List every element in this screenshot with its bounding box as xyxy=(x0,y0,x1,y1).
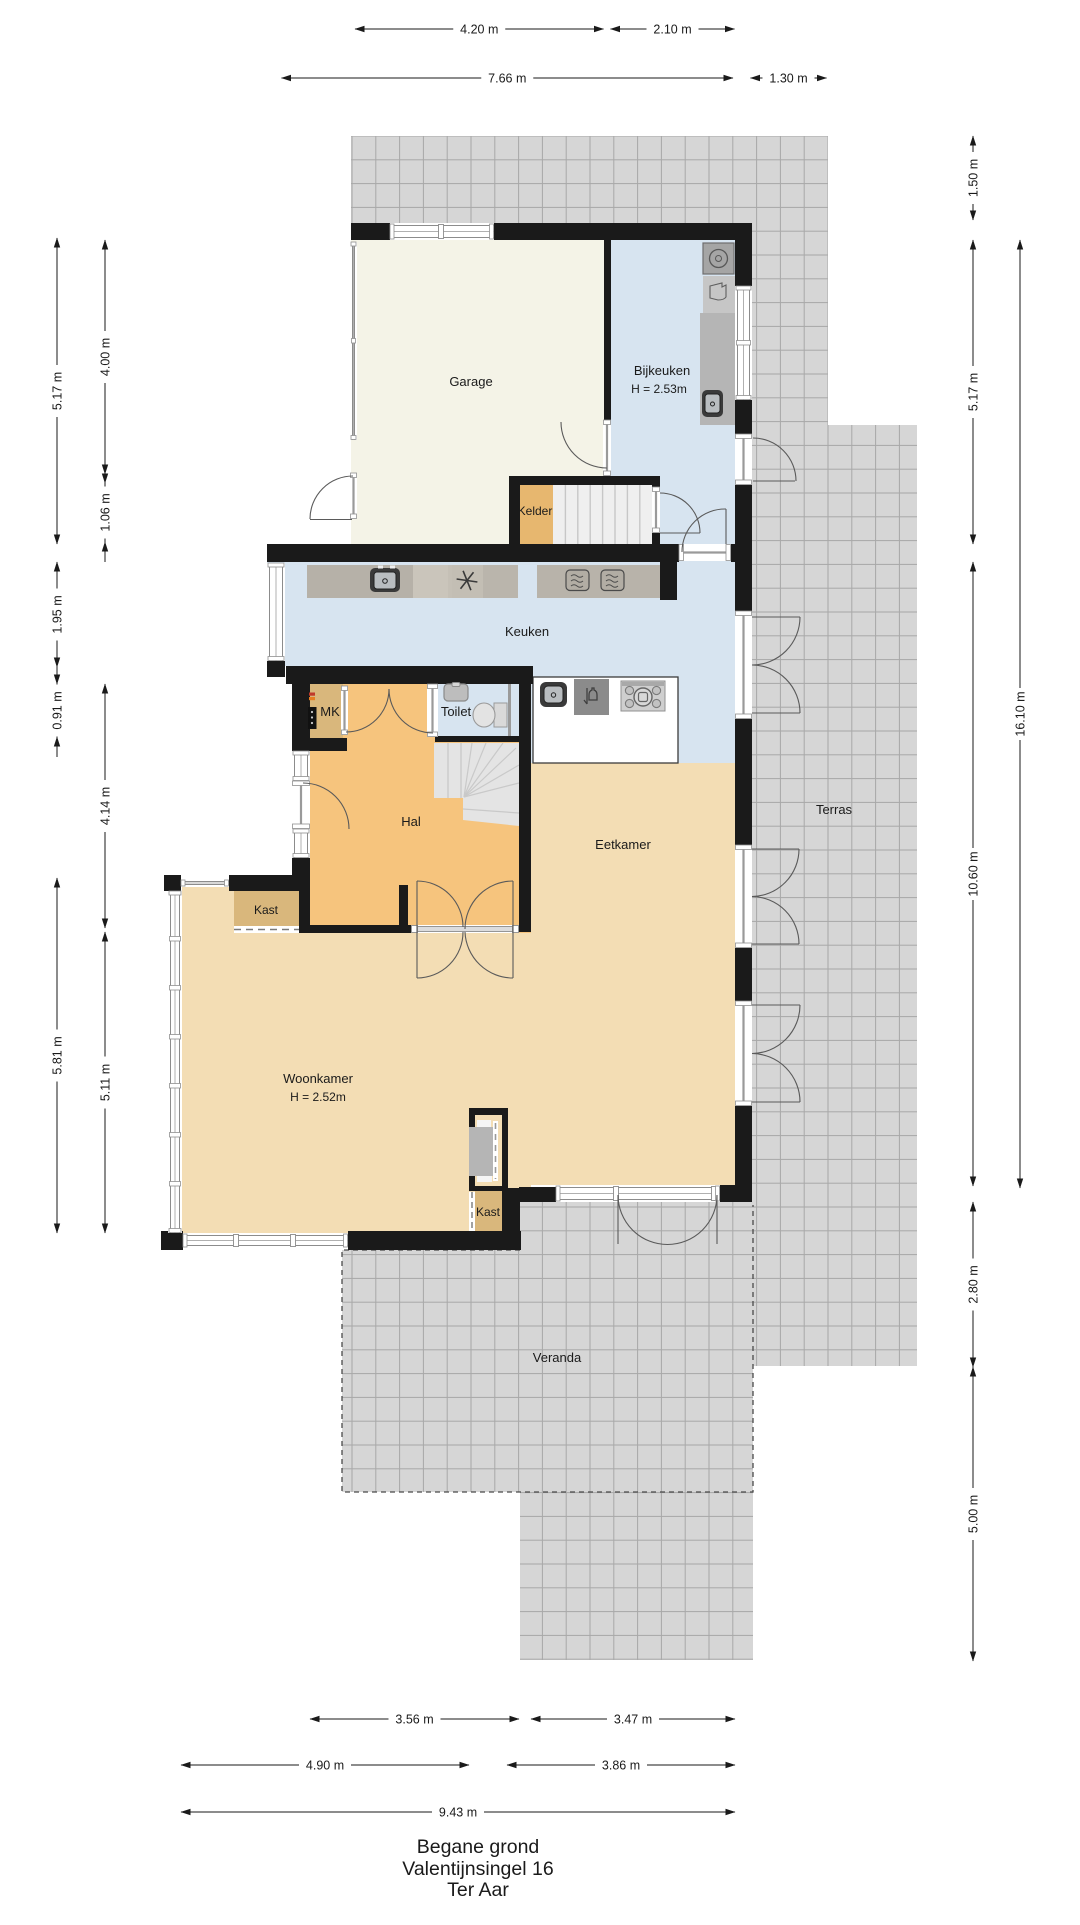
svg-text:Terras: Terras xyxy=(816,802,853,817)
svg-text:Keuken: Keuken xyxy=(505,624,549,639)
svg-text:Ter Aar: Ter Aar xyxy=(447,1879,509,1901)
svg-text:5.17 m: 5.17 m xyxy=(967,373,981,411)
svg-text:3.56 m: 3.56 m xyxy=(395,1713,433,1727)
svg-text:5.11 m: 5.11 m xyxy=(99,1064,113,1101)
svg-text:1.06 m: 1.06 m xyxy=(99,493,113,531)
svg-text:1.30 m: 1.30 m xyxy=(769,72,807,86)
svg-text:Veranda: Veranda xyxy=(533,1350,582,1365)
svg-text:10.60 m: 10.60 m xyxy=(967,851,981,896)
svg-text:0.91 m: 0.91 m xyxy=(51,691,65,729)
svg-text:H = 2.52m: H = 2.52m xyxy=(290,1090,346,1104)
svg-text:Kelder: Kelder xyxy=(518,504,553,518)
svg-text:1.95 m: 1.95 m xyxy=(51,595,65,633)
svg-text:7.66 m: 7.66 m xyxy=(488,72,526,86)
svg-text:4.00 m: 4.00 m xyxy=(99,338,113,376)
svg-text:Kast: Kast xyxy=(476,1205,501,1219)
svg-text:5.00 m: 5.00 m xyxy=(967,1495,981,1533)
svg-text:Kast: Kast xyxy=(254,903,279,917)
svg-text:Eetkamer: Eetkamer xyxy=(595,837,651,852)
svg-text:5.17 m: 5.17 m xyxy=(51,372,65,410)
svg-text:3.47 m: 3.47 m xyxy=(614,1713,652,1727)
svg-text:5.81 m: 5.81 m xyxy=(51,1036,65,1074)
svg-text:Garage: Garage xyxy=(449,374,492,389)
svg-text:16.10 m: 16.10 m xyxy=(1014,691,1028,736)
svg-text:2.80 m: 2.80 m xyxy=(967,1265,981,1303)
svg-text:MK: MK xyxy=(320,704,340,719)
svg-text:Toilet: Toilet xyxy=(441,704,472,719)
svg-text:3.86 m: 3.86 m xyxy=(602,1759,640,1773)
svg-text:Bijkeuken: Bijkeuken xyxy=(634,363,690,378)
svg-text:9.43 m: 9.43 m xyxy=(439,1806,477,1820)
svg-text:Valentijnsingel 16: Valentijnsingel 16 xyxy=(402,1858,553,1880)
svg-text:Hal: Hal xyxy=(401,814,421,829)
svg-text:Woonkamer: Woonkamer xyxy=(283,1071,354,1086)
svg-text:4.20 m: 4.20 m xyxy=(460,23,498,37)
svg-text:2.10 m: 2.10 m xyxy=(653,23,691,37)
svg-text:4.14 m: 4.14 m xyxy=(99,787,113,825)
svg-text:1.50 m: 1.50 m xyxy=(967,159,981,197)
svg-text:H = 2.53m: H = 2.53m xyxy=(631,382,687,396)
svg-text:4.90 m: 4.90 m xyxy=(306,1759,344,1773)
svg-text:Begane grond: Begane grond xyxy=(417,1836,540,1858)
